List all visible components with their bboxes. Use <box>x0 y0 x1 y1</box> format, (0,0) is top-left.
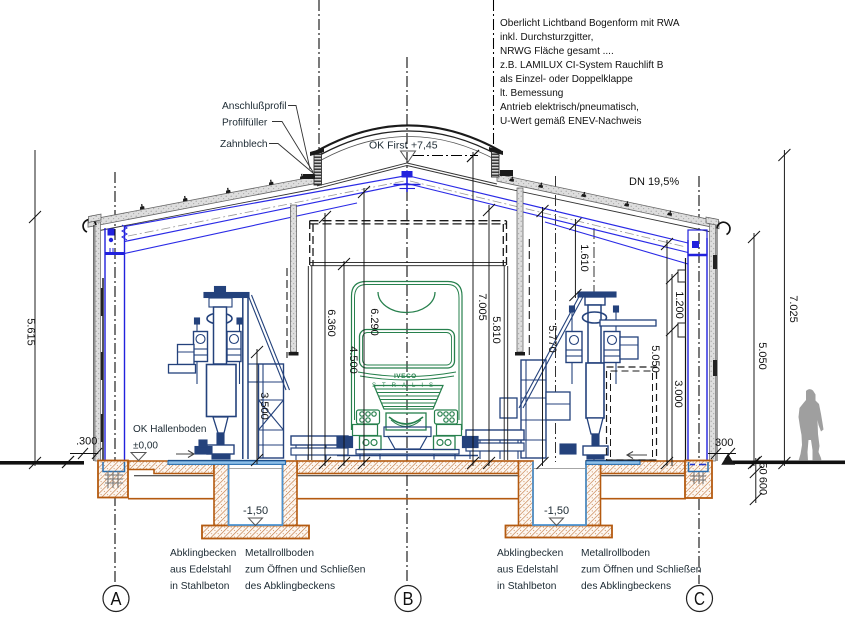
svg-text:3.000: 3.000 <box>672 380 684 408</box>
svg-text:Profilfüller: Profilfüller <box>222 118 268 129</box>
svg-text:des Abklingbeckens: des Abklingbeckens <box>581 581 671 592</box>
svg-text:6.290: 6.290 <box>368 308 380 336</box>
svg-text:DN 19,5%: DN 19,5% <box>629 176 679 188</box>
svg-text:Antrieb elektrisch/pneumatisch: Antrieb elektrisch/pneumatisch, <box>500 102 639 113</box>
svg-text:inkl. Durchsturzgitter,: inkl. Durchsturzgitter, <box>500 32 593 43</box>
svg-text:7.005: 7.005 <box>476 293 488 321</box>
svg-text:IVECO: IVECO <box>394 373 417 380</box>
svg-text:±0,00: ±0,00 <box>133 441 158 452</box>
svg-text:aus Edelstahl: aus Edelstahl <box>170 565 231 576</box>
svg-text:50: 50 <box>757 462 769 474</box>
svg-text:OK Hallenboden: OK Hallenboden <box>133 424 206 435</box>
svg-text:Oberlicht Lichtband Bogenform: Oberlicht Lichtband Bogenform mit RWA <box>500 18 680 29</box>
svg-text:7.025: 7.025 <box>787 295 799 323</box>
svg-text:4.500: 4.500 <box>347 346 359 374</box>
svg-text:Abklingbecken: Abklingbecken <box>497 548 563 559</box>
svg-text:in Stahlbeton: in Stahlbeton <box>497 581 556 592</box>
svg-text:1.200: 1.200 <box>673 291 685 319</box>
svg-text:A: A <box>111 589 122 609</box>
svg-text:zum Öffnen und Schließen: zum Öffnen und Schließen <box>245 564 365 576</box>
svg-text:in Stahlbeton: in Stahlbeton <box>170 581 229 592</box>
svg-text:+7,45: +7,45 <box>411 140 438 152</box>
svg-text:300: 300 <box>715 437 733 449</box>
svg-text:1.610: 1.610 <box>578 244 590 272</box>
svg-text:5.770: 5.770 <box>546 325 558 353</box>
svg-text:des Abklingbeckens: des Abklingbeckens <box>245 581 335 592</box>
svg-text:600: 600 <box>757 477 769 495</box>
svg-text:.300: .300 <box>76 436 97 448</box>
svg-text:3.500: 3.500 <box>258 392 270 420</box>
svg-text:5.810: 5.810 <box>490 316 502 344</box>
svg-text:5.050: 5.050 <box>649 345 661 373</box>
svg-text:Metallrollboden: Metallrollboden <box>245 548 314 559</box>
svg-text:als Einzel- oder Doppelklappe: als Einzel- oder Doppelklappe <box>500 74 633 85</box>
svg-text:z.B. LAMILUX CI-System Rauchli: z.B. LAMILUX CI-System Rauchlift B <box>500 60 664 71</box>
svg-text:6.360: 6.360 <box>325 309 337 337</box>
svg-text:Anschlußprofil: Anschlußprofil <box>222 101 287 112</box>
svg-text:Zahnblech: Zahnblech <box>220 139 268 150</box>
svg-text:NRWG Fläche gesamt ....: NRWG Fläche gesamt .... <box>500 46 614 57</box>
svg-text:U-Wert gemäß ENEV-Nachweis: U-Wert gemäß ENEV-Nachweis <box>500 116 642 127</box>
svg-text:-1,50: -1,50 <box>243 505 268 517</box>
svg-text:Metallrollboden: Metallrollboden <box>581 548 650 559</box>
svg-text:5.615: 5.615 <box>25 318 37 346</box>
svg-text:aus Edelstahl: aus Edelstahl <box>497 565 558 576</box>
svg-text:-1,50: -1,50 <box>544 505 569 517</box>
svg-text:OK First: OK First <box>369 140 408 152</box>
svg-text:B: B <box>403 589 414 609</box>
svg-text:5.050: 5.050 <box>756 342 768 370</box>
svg-text:C: C <box>694 589 705 609</box>
svg-text:Abklingbecken: Abklingbecken <box>170 548 236 559</box>
svg-text:lt. Bemessung: lt. Bemessung <box>500 88 563 99</box>
svg-text:zum Öffnen und Schließen: zum Öffnen und Schließen <box>581 564 701 576</box>
